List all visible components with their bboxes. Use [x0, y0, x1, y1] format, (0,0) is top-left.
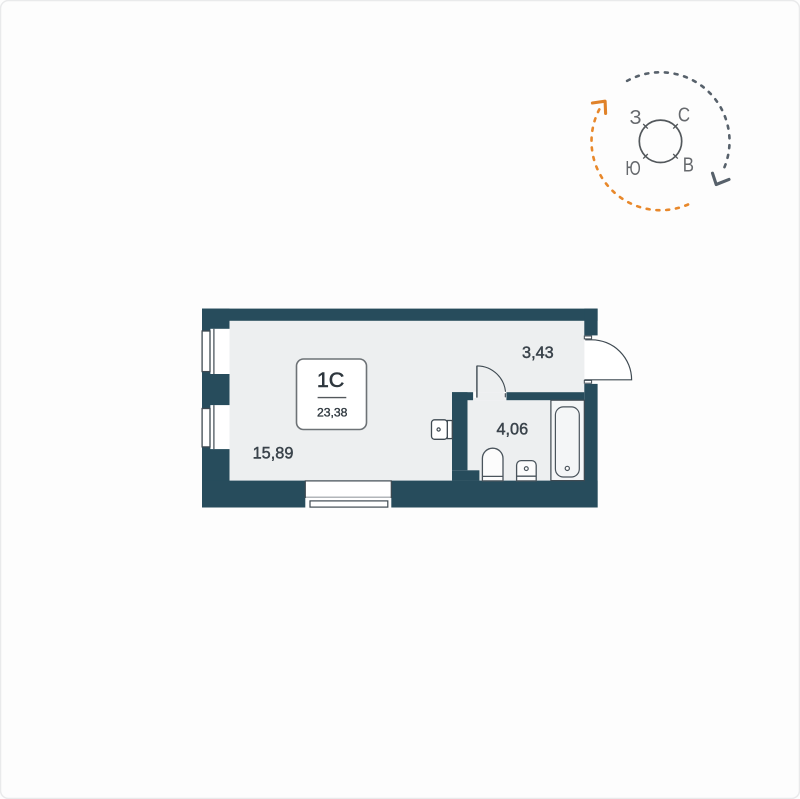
svg-text:З: З	[629, 107, 641, 129]
svg-text:В: В	[683, 155, 694, 177]
svg-text:4,06: 4,06	[496, 421, 528, 439]
svg-text:15,89: 15,89	[253, 444, 294, 462]
svg-text:С: С	[678, 105, 690, 127]
svg-text:23,38: 23,38	[317, 406, 348, 420]
svg-text:1С: 1С	[317, 368, 344, 392]
svg-text:Ю: Ю	[625, 158, 640, 180]
svg-text:3,43: 3,43	[522, 344, 554, 362]
